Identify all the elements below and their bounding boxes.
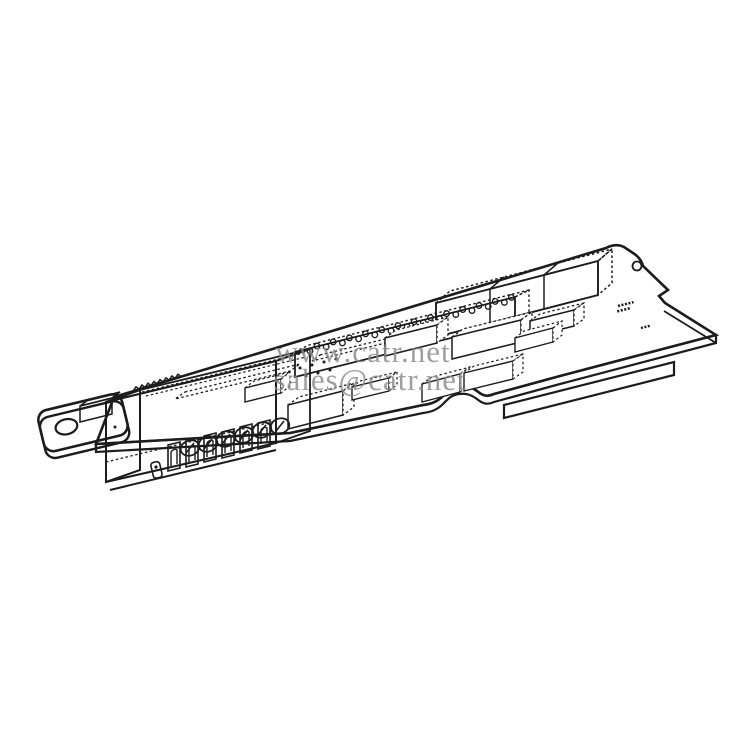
product-image-canvas: www.catr.net sales@catr.net — [0, 0, 750, 750]
pcb-line-drawing: www.catr.net sales@catr.net — [0, 0, 750, 750]
board-hole — [633, 262, 642, 271]
watermark: www.catr.net sales@catr.net — [273, 334, 466, 397]
watermark-email: sales@catr.net — [273, 362, 466, 397]
terminal-block-front — [106, 361, 276, 482]
edge-connector-strip — [504, 362, 674, 418]
board-marking — [616, 302, 651, 328]
relay-top — [436, 249, 612, 303]
component-box — [464, 354, 523, 391]
terminal-block-bottom-edge — [110, 450, 276, 490]
mounting-hole — [54, 417, 79, 437]
